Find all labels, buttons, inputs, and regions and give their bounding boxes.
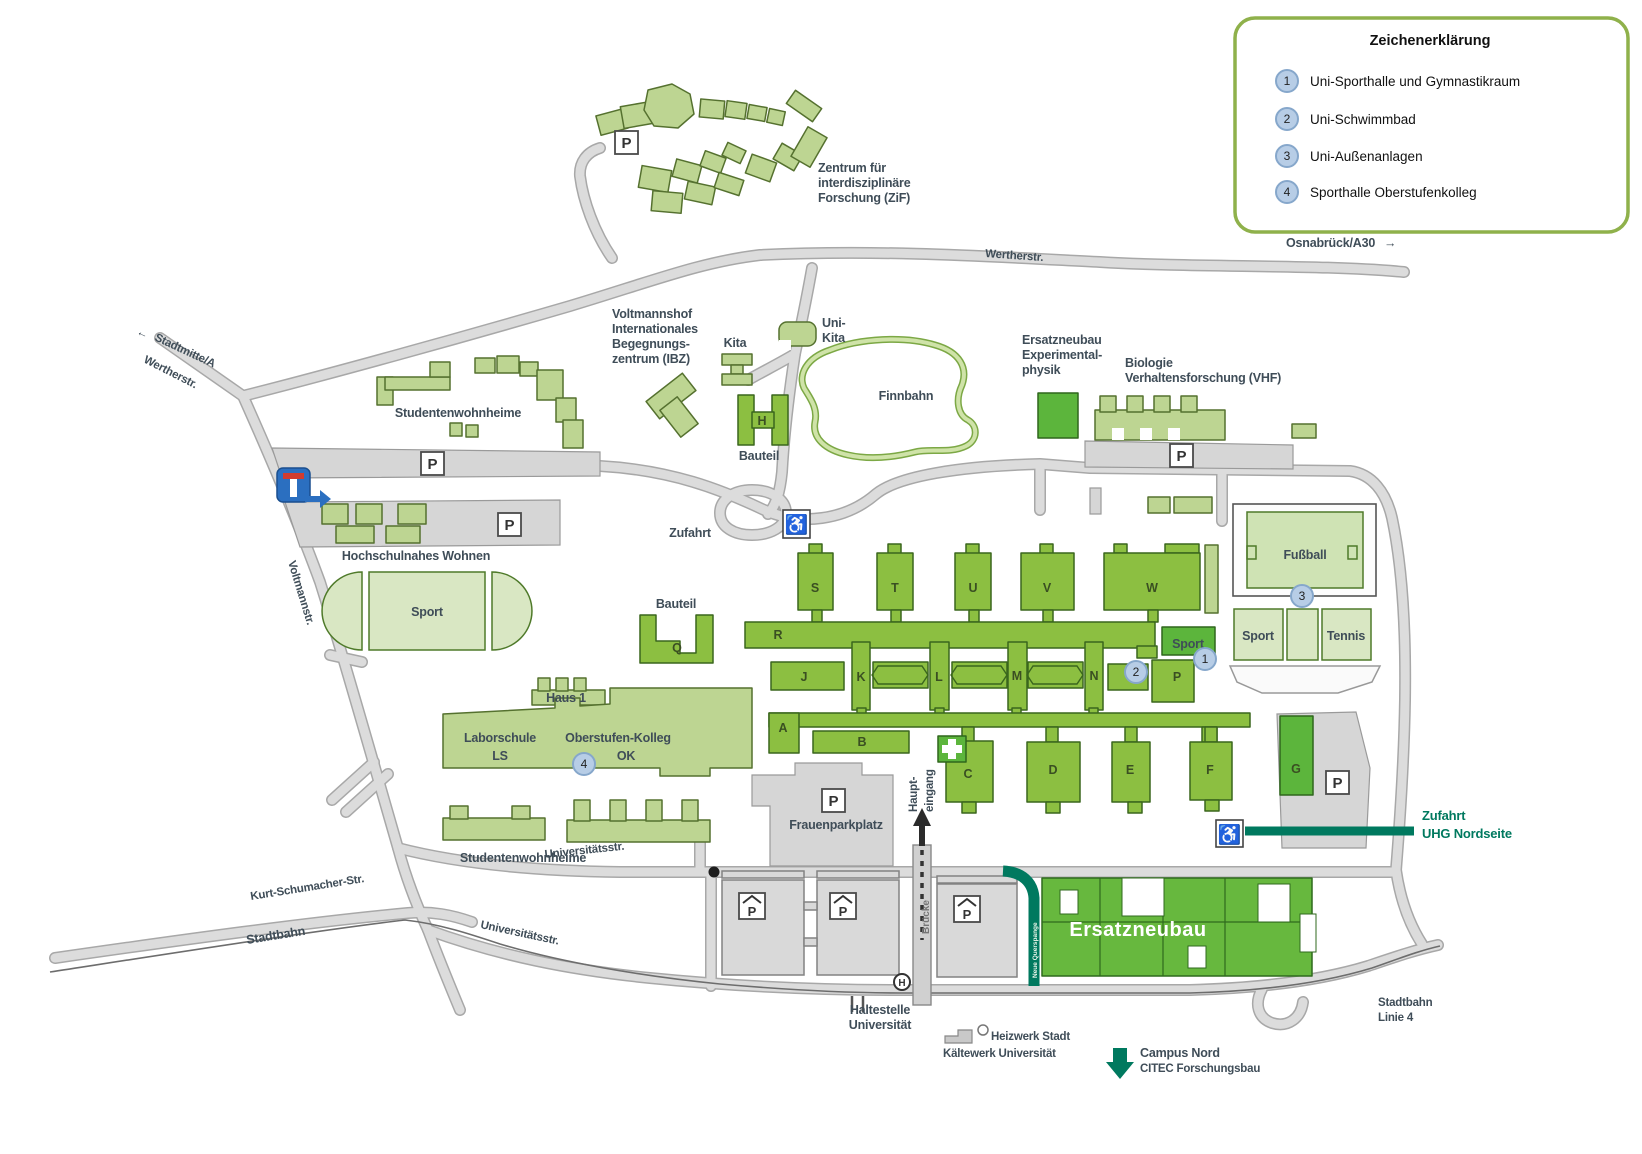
block-j [771, 662, 844, 690]
haupteingang-label-2: eingang [924, 769, 936, 812]
legend: Zeichenerklärung 1 Uni-Sporthalle und Gy… [1235, 18, 1628, 232]
kita-building [722, 354, 752, 385]
garage-link-1 [804, 902, 817, 910]
parking-icon: P [1332, 775, 1342, 792]
neue-querspange-label: Neue Querspange [1032, 922, 1039, 978]
universitaetsstr-lower-label: Universitätsstr. [479, 919, 560, 947]
ersatzneubau-sued-label: Ersatzneubau [1069, 919, 1206, 941]
legend-badge-3: 3 [1284, 149, 1291, 163]
campus-map: ♿ ♿ P P P P P P P P P [0, 0, 1642, 1154]
sport-oval-label: Sport [411, 605, 444, 619]
ersatzneubau-physik-label-2: Experimental- [1022, 348, 1102, 362]
garage-lane-2 [817, 871, 899, 878]
parking-icon: P [1176, 448, 1186, 465]
haltestelle-label-1: Haltestelle [850, 1003, 911, 1017]
bruecke-label: Brücke [921, 900, 932, 934]
wheelchair-icon: ♿ [1218, 823, 1242, 846]
campus-nord-arrow-icon [1106, 1048, 1134, 1079]
fussball-label: Fußball [1283, 548, 1326, 562]
badge-3: 3 [1299, 589, 1306, 603]
wohnen-strip-buildings [322, 504, 426, 543]
letter-q: Q [672, 641, 682, 655]
zif-label-1: Zentrum für [818, 161, 886, 175]
biologie-label-1: Biologie [1125, 356, 1173, 370]
parking-sign-north-2: P [498, 513, 521, 536]
bauteil-q-label: Bauteil [656, 597, 696, 611]
garage-link-2 [804, 938, 817, 946]
voltmannshof-label-3: Begegnungs- [612, 337, 690, 351]
bauteil-h-label: Bauteil [739, 449, 779, 463]
stadtbahn-linie4-label-1: Stadtbahn [1378, 997, 1433, 1009]
zufahrt-uhg-label-1: Zufahrt [1422, 808, 1466, 823]
voltmannshof-label-2: Internationales [612, 322, 698, 336]
parking-sign-north-1: P [421, 452, 444, 475]
campus-map-canvas: ♿ ♿ P P P P P P P P P [0, 0, 1642, 1154]
tower-g [1280, 716, 1313, 795]
badge-1: 1 [1202, 652, 1209, 666]
legend-item-2: Uni-Schwimmbad [1310, 112, 1416, 127]
parking-sign-frauenparkplatz: P [822, 789, 845, 812]
legend-badge-2: 2 [1284, 112, 1291, 126]
frauenparkplatz-area [752, 763, 893, 866]
parking-icon: P [963, 907, 972, 922]
experimentalphysik-building [1038, 393, 1078, 438]
biologie-label-2: Verhaltensforschung (VHF) [1125, 371, 1281, 385]
bar-a [769, 713, 1250, 727]
parking-icon: P [828, 793, 838, 810]
legend-badge-1: 1 [1284, 74, 1291, 88]
letter-j: J [801, 670, 808, 684]
laborschule-label-1: Laborschule [464, 731, 536, 745]
letter-m: M [1012, 669, 1022, 683]
zif-label-2: interdisziplinäre [818, 176, 911, 190]
tram-stop-h: H [894, 974, 910, 990]
wheelchair-access-east: ♿ [1216, 820, 1243, 847]
legend-item-1: Uni-Sporthalle und Gymnastikraum [1310, 74, 1520, 89]
parking-icon: P [504, 517, 514, 534]
campus-nord-label-2: CITEC Forschungsbau [1140, 1063, 1260, 1075]
zif-label-3: Forschung (ZiF) [818, 191, 910, 205]
garage-lane-3 [937, 876, 1017, 883]
studentenwohnheime-nord-buildings [377, 356, 583, 448]
letter-g: G [1291, 762, 1301, 776]
parking-icon: P [839, 904, 848, 919]
letter-w: W [1146, 581, 1158, 595]
uni-kita-building [779, 322, 816, 350]
frauenparkplatz-label: Frauenparkplatz [789, 818, 883, 832]
haltestelle-label-2: Universität [849, 1018, 912, 1032]
garage-lane-1 [722, 871, 804, 878]
letter-d: D [1048, 763, 1057, 777]
junction-dot [709, 867, 720, 878]
finnbahn-label: Finnbahn [879, 389, 934, 403]
parking-icon: P [748, 904, 757, 919]
letter-c: C [963, 767, 972, 781]
letter-n: N [1089, 669, 1098, 683]
parking-garage-icon-3: P [954, 896, 980, 922]
parking-icon: P [621, 135, 631, 152]
uni-kita-label-2: Kita [822, 331, 846, 345]
letter-f: F [1206, 763, 1214, 777]
oberstufen-kolleg-label-1: Oberstufen-Kolleg [565, 731, 671, 745]
legend-title: Zeichenerklärung [1370, 33, 1491, 49]
badge-4: 4 [581, 757, 588, 771]
wheelchair-icon: ♿ [785, 513, 809, 536]
haus1-label: Haus 1 [546, 691, 586, 705]
arrow-right-icon: → [1384, 236, 1396, 250]
parking-garage-icon-1: P [739, 893, 765, 919]
voltmannshof-label-1: Voltmannshof [612, 307, 693, 321]
tennis-label: Tennis [1327, 629, 1365, 643]
campus-nord-label-1: Campus Nord [1140, 1046, 1220, 1060]
medical-cross-icon [938, 736, 966, 762]
zufahrt-label: Zufahrt [669, 526, 712, 540]
laborschule-label-2: LS [492, 749, 508, 763]
h-stop-icon: H [898, 978, 905, 989]
ersatzneubau-physik-label-3: physik [1022, 363, 1061, 377]
letter-e: E [1126, 763, 1134, 777]
zufahrt-uhg-label-2: UHG Nordseite [1422, 826, 1512, 841]
heizwerk-label-2: Kältewerk Universität [943, 1048, 1056, 1060]
bauteil-q-building [640, 615, 713, 663]
stadtbahn-linie4-label-2: Linie 4 [1378, 1012, 1414, 1024]
entrance-arrow-icon [913, 808, 931, 846]
kita-label: Kita [724, 336, 748, 350]
legend-item-3: Uni-Außenanlagen [1310, 149, 1423, 164]
tribune-shape [1230, 666, 1380, 693]
voltmannshof-label-4: zentrum (IBZ) [612, 352, 690, 366]
heizwerk-icon [945, 1025, 988, 1043]
studentenwohnheime-sued-buildings [443, 800, 710, 842]
heizwerk-label-1: Heizwerk Stadt [991, 1031, 1070, 1043]
legend-badge-4: 4 [1284, 185, 1291, 199]
hochschulnahes-wohnen-label: Hochschulnahes Wohnen [342, 549, 490, 563]
letter-t: T [891, 581, 899, 595]
letter-p: P [1173, 670, 1181, 684]
ibz-building [646, 373, 698, 437]
osnabrueck-label: Osnabrück/A30 [1286, 236, 1375, 250]
parking-icon: P [427, 456, 437, 473]
letter-h: H [757, 414, 766, 428]
studentenwohnheime-nord-label: Studentenwohnheime [395, 406, 522, 420]
studentenwohnheime-sued-label: Studentenwohnheime [460, 851, 587, 865]
parking-garage-icon-2: P [830, 893, 856, 919]
parking-sign-vhf: P [1170, 444, 1193, 467]
arrow-left-icon: ← [135, 326, 150, 342]
middle-court [1287, 609, 1318, 660]
letter-a: A [778, 721, 787, 735]
letter-b: B [857, 735, 866, 749]
letter-s: S [811, 581, 819, 595]
ersatzneubau-physik-label-1: Ersatzneubau [1022, 333, 1102, 347]
kurt-schumacher-label: Kurt-Schumacher-Str. [250, 873, 365, 903]
letter-k: K [856, 670, 865, 684]
oberstufen-kolleg-label-2: OK [617, 749, 636, 763]
letter-l: L [935, 670, 943, 684]
parking-sign-zif: P [615, 131, 638, 154]
letter-r: R [773, 628, 782, 642]
letter-v: V [1043, 581, 1052, 595]
letter-u: U [968, 581, 977, 595]
parking-sign-plaza-east: P [1326, 771, 1349, 794]
badge-2: 2 [1133, 665, 1140, 679]
sport-court-label: Sport [1242, 629, 1275, 643]
uni-kita-label-1: Uni- [822, 316, 846, 330]
legend-item-4: Sporthalle Oberstufenkolleg [1310, 185, 1477, 200]
vhf-building [1095, 396, 1316, 440]
wheelchair-access-west: ♿ [783, 510, 810, 538]
haupteingang-label-1: Haupt- [908, 776, 920, 812]
road-stub-small [1090, 488, 1101, 514]
